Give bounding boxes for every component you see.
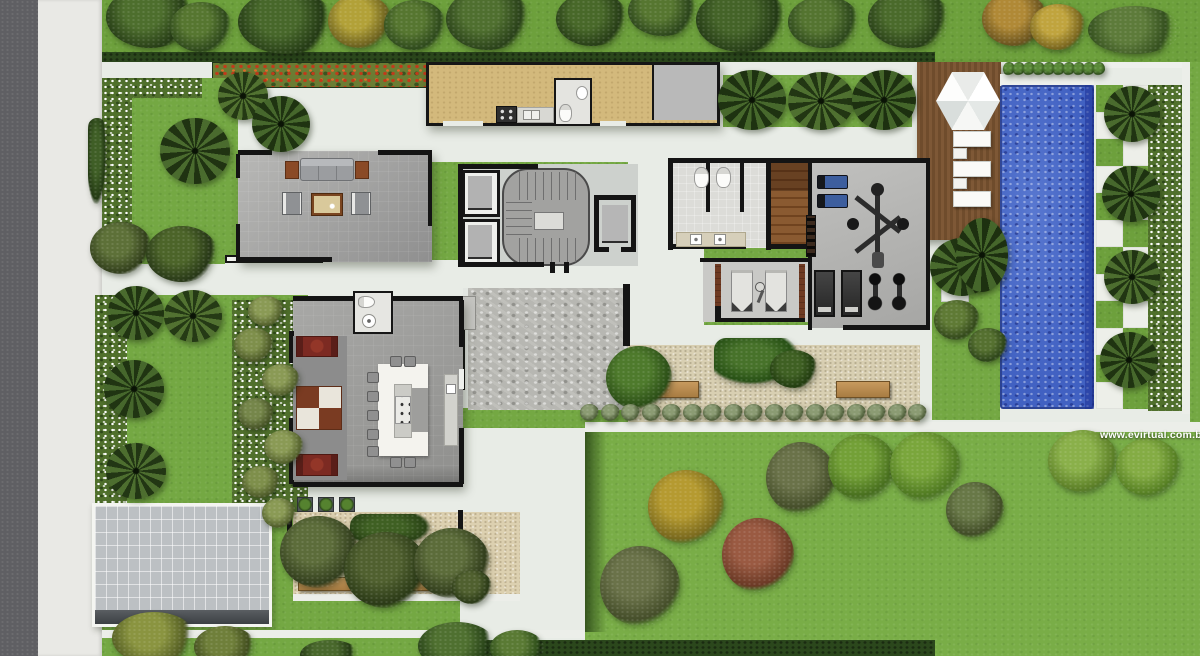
bush [662,404,681,421]
stair-treads [512,172,578,200]
treadmill [814,270,835,317]
vanity-counter [676,232,746,247]
tree [248,296,284,326]
side-table [355,161,369,179]
wall-segment [594,195,636,200]
dining-chair [404,457,416,468]
wall-segment [621,247,636,252]
door-opening [459,369,464,389]
tree [648,470,724,544]
sauna-bench [771,163,808,191]
exercise-bike [890,272,908,312]
tree [300,640,360,656]
wall-segment [458,164,538,169]
wall-segment [459,428,464,484]
tree [264,430,304,464]
palm-tree [1102,166,1160,222]
stair-treads [506,200,532,242]
bush [1093,62,1105,76]
driveway [92,503,272,627]
paver-tile [1123,139,1150,166]
wall-segment [390,296,463,301]
wall-segment [623,284,630,346]
tree [242,466,280,498]
palm-tree [852,70,916,130]
bush [621,404,640,421]
pool-deep-edge [1085,85,1094,409]
dining-chair [404,356,416,367]
palm-tree [252,96,310,152]
tree [146,226,218,282]
tree [722,518,794,592]
dining-chair [367,429,379,440]
bush [683,404,702,421]
red-sofa [296,454,338,476]
reflecting-pool [468,288,628,410]
bush [888,404,907,421]
sun-lounger [953,131,991,147]
bush [826,404,845,421]
palm-tree [106,443,166,499]
tree [170,2,232,52]
wall-segment [458,164,463,267]
bush [744,404,763,421]
dining-chair [367,410,379,421]
planter-box [297,497,313,512]
sofa [300,158,354,181]
dining-chair [390,356,402,367]
white-flower-border [102,78,202,98]
palm-tree [956,218,1008,292]
wood-panel [799,264,805,320]
wall-segment [236,257,332,262]
counter-sink [446,384,456,394]
street-asphalt [0,0,38,656]
planter-box [318,497,334,512]
wall-segment [594,247,609,252]
boundary-wall-right [1182,62,1190,414]
toilet [716,167,731,188]
toilet [559,104,572,122]
palm-tree [1100,332,1158,388]
wall-segment [459,300,464,347]
elevator-cab [468,225,492,259]
stove [496,106,517,123]
service-elevator-cab [602,205,628,243]
red-sofa [296,336,338,357]
tree [1030,4,1086,50]
site-plan-rendering: www.evirtual.com.br [0,0,1200,656]
massage-table [731,270,753,312]
bush [642,404,661,421]
bush [785,404,804,421]
toilet [694,167,709,188]
tree [262,498,296,528]
checkered-rug [296,386,342,430]
elevator-cab [468,176,492,210]
wall-segment [236,154,240,178]
tree [1116,438,1180,496]
bush [601,404,620,421]
treadmill [841,270,862,317]
tree [890,432,960,500]
wall-segment [428,150,432,226]
coffee-table-top [314,196,340,213]
bush [765,404,784,421]
door-opening [600,121,626,126]
palm-tree [164,290,222,342]
palm-tree [1104,86,1160,142]
dining-chair [367,391,379,402]
bush [908,404,927,421]
weight-stack [871,183,884,196]
palm-tree [160,118,230,184]
bush [580,404,599,421]
wall-segment [721,318,805,322]
bush [847,404,866,421]
sink [576,86,588,100]
watermark: www.evirtual.com.br [1100,429,1198,441]
garden-bench [836,381,890,398]
tree [234,328,274,362]
wall-segment [843,325,930,330]
paver-tile [1096,220,1123,247]
tree [968,328,1008,362]
cooktop [395,396,411,424]
tree [600,546,680,626]
tree [770,350,818,388]
kitchen-sink [523,110,540,120]
wall-segment [458,262,544,267]
palm-tree [1104,250,1160,304]
wall-segment [238,150,272,155]
wall-segment [631,195,636,252]
armchair [351,192,371,215]
tree [606,346,672,410]
palm-tree [104,360,164,418]
massage-table [765,270,787,312]
sun-lounger [953,191,991,207]
stall-divider [740,162,744,212]
walkway-top-left [102,62,212,78]
tree [452,570,492,604]
tree [1088,6,1180,54]
palm-tree [718,70,786,130]
sink [714,234,726,245]
storage-room [652,65,717,120]
side-table [285,161,299,179]
tree [90,222,152,274]
wall-segment [550,262,555,273]
wall-segment [293,296,357,301]
armchair [282,192,302,215]
dining-chair [367,446,379,457]
bush [724,404,743,421]
dining-chair [367,372,379,383]
tree [112,612,196,656]
exercise-bike [866,272,884,312]
weight-bench [817,194,848,208]
machine-seat [872,252,884,268]
wall-segment [378,150,432,155]
palm-tree [108,286,164,340]
wall-segment [564,262,569,273]
weight-stack [847,218,859,230]
planter-box [339,497,355,512]
tree [766,442,836,514]
sink [362,314,376,328]
weight-stack [897,218,909,230]
tree [262,364,300,396]
wall-segment [926,158,930,330]
bush [703,404,722,421]
toilet [358,296,375,308]
weight-bench [817,175,848,189]
tree [88,118,106,204]
tree [384,0,446,50]
paver-tile [1123,301,1150,328]
sink [690,234,702,245]
bush [806,404,825,421]
table-notch [412,388,428,432]
deck-side-table [953,148,967,159]
tree [946,482,1004,538]
stair-treads [512,238,578,262]
sun-lounger [953,161,991,177]
wall-segment [293,482,463,487]
door-opening [443,121,483,126]
tree [238,398,274,430]
deck-side-table [953,178,967,189]
stair-landing [534,212,564,230]
bush [867,404,886,421]
swimming-pool [1000,85,1094,409]
dumbbell-rack [806,215,816,257]
dining-chair [390,457,402,468]
multi-gym-machine [850,190,906,266]
wall-segment [594,195,599,252]
palm-tree [788,72,854,130]
tree [828,434,896,500]
wall-segment [668,158,673,250]
wall-segment [700,258,810,262]
